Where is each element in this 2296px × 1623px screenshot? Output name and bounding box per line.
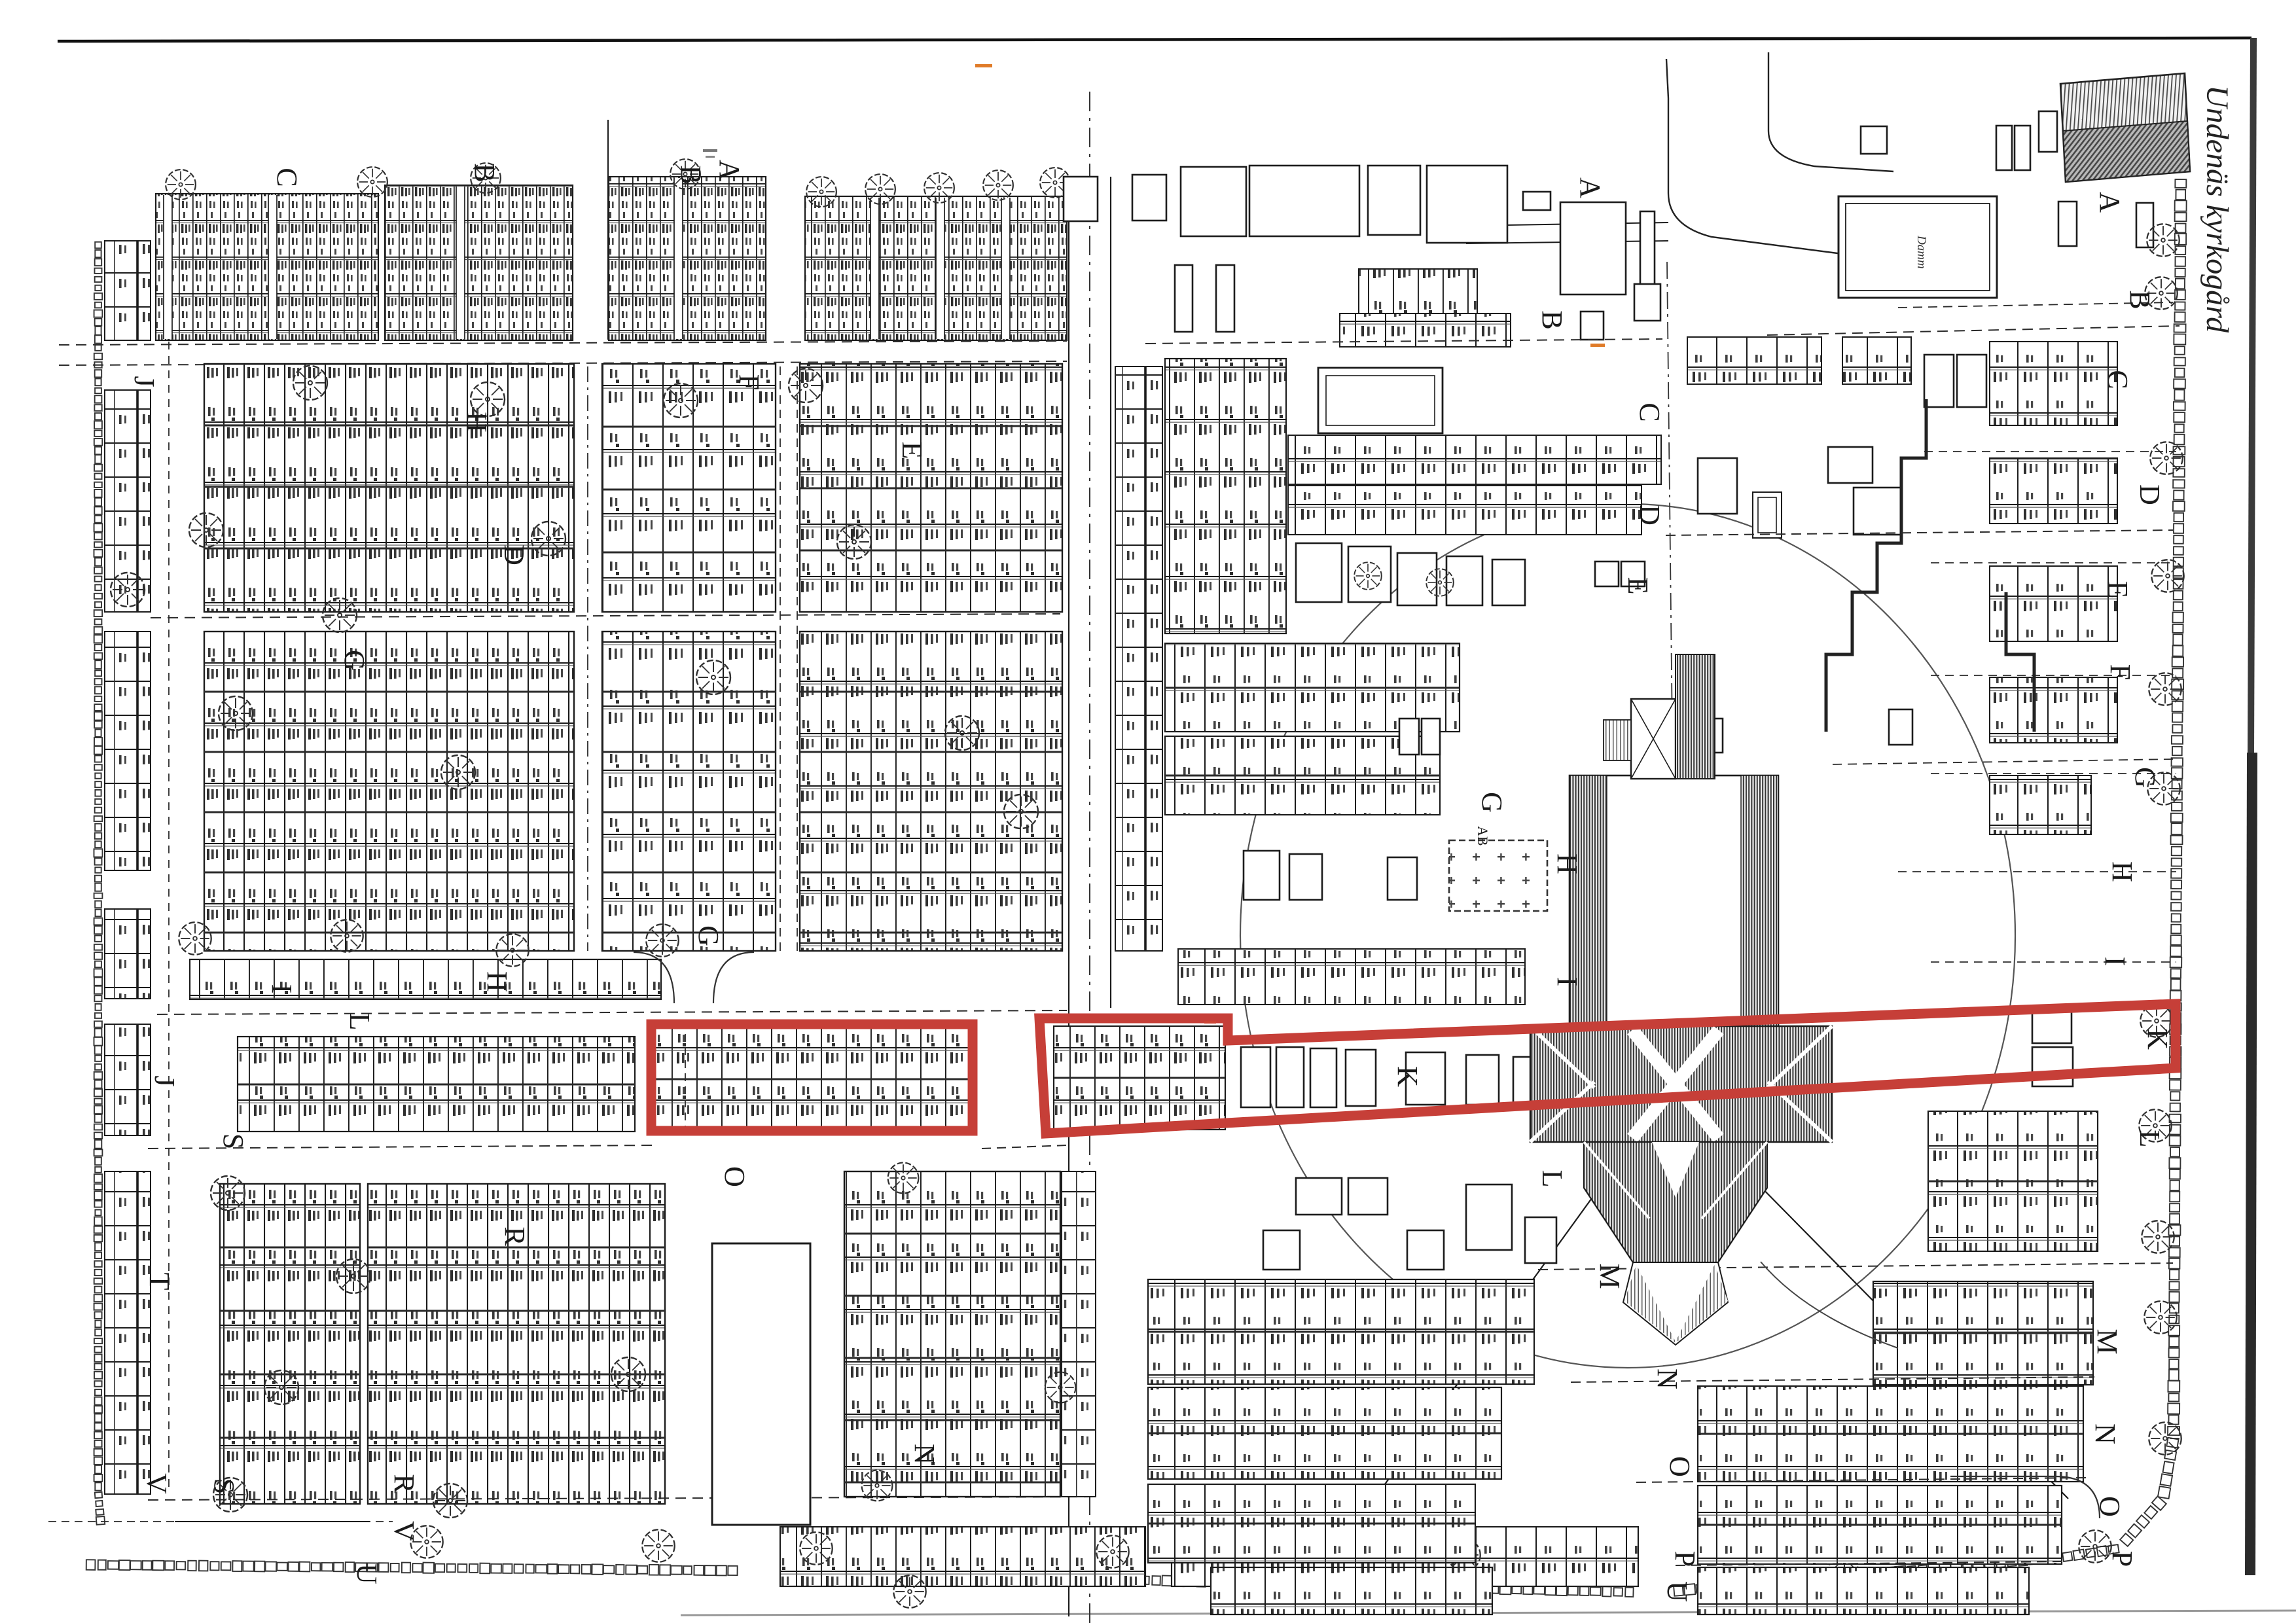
svg-text:I: I — [1551, 977, 1583, 987]
svg-text:O: O — [2094, 1496, 2126, 1517]
svg-text:F: F — [733, 374, 765, 390]
svg-text:G: G — [692, 925, 725, 946]
svg-text:S: S — [217, 1133, 249, 1149]
svg-text:H: H — [1551, 853, 1583, 874]
svg-text:D: D — [498, 544, 530, 565]
svg-text:V: V — [388, 1521, 420, 1542]
svg-text:K: K — [1391, 1066, 1424, 1087]
svg-text:I: I — [2099, 957, 2131, 967]
svg-text:G: G — [1476, 792, 1508, 813]
svg-text:A: A — [713, 160, 745, 181]
svg-text:AB: AB — [1475, 826, 1491, 846]
svg-text:J: J — [128, 376, 160, 387]
svg-text:G: G — [2129, 767, 2161, 788]
svg-text:B: B — [469, 163, 501, 182]
svg-text:H: H — [481, 971, 513, 992]
svg-text:P: P — [2106, 1551, 2138, 1567]
svg-text:L: L — [2134, 1130, 2166, 1148]
svg-text:Damm: Damm — [1914, 235, 1928, 269]
svg-text:D: D — [1634, 505, 1666, 526]
svg-text:E: E — [2102, 581, 2134, 599]
svg-text:L: L — [344, 1013, 376, 1031]
svg-text:G: G — [338, 650, 370, 671]
svg-text:M: M — [1594, 1263, 1626, 1289]
svg-text:N: N — [1651, 1368, 1683, 1389]
svg-text:N: N — [908, 1444, 941, 1465]
svg-text:R: R — [499, 1226, 531, 1246]
svg-text:F: F — [2104, 664, 2136, 680]
svg-text:C: C — [2102, 370, 2134, 389]
svg-text:T: T — [143, 1273, 175, 1291]
svg-text:S: S — [208, 1478, 240, 1494]
svg-text:U: U — [1661, 1581, 1693, 1602]
svg-text:M: M — [2091, 1329, 2123, 1354]
svg-text:E: E — [1622, 577, 1654, 595]
svg-text:I: I — [266, 984, 298, 994]
svg-text:O: O — [1664, 1456, 1696, 1477]
svg-text:A: A — [2094, 192, 2126, 213]
svg-text:O: O — [719, 1166, 751, 1187]
svg-text:J: J — [149, 1075, 181, 1086]
svg-text:V: V — [141, 1473, 173, 1494]
svg-text:B: B — [675, 165, 707, 184]
svg-text:C: C — [1634, 402, 1666, 421]
svg-text:L: L — [1536, 1170, 1568, 1188]
svg-text:U: U — [351, 1563, 383, 1584]
svg-text:B: B — [2124, 290, 2156, 309]
svg-text:B: B — [1536, 310, 1568, 329]
svg-text:D: D — [2134, 484, 2166, 505]
svg-text:N: N — [2089, 1423, 2121, 1444]
svg-text:H: H — [2106, 861, 2138, 882]
svg-text:Undenäs kyrkogård: Undenäs kyrkogård — [2200, 85, 2234, 333]
svg-text:H: H — [461, 412, 493, 433]
svg-text:K: K — [2142, 1029, 2174, 1050]
svg-text:E: E — [896, 442, 928, 459]
svg-text:R: R — [388, 1474, 420, 1493]
svg-text:P: P — [1669, 1551, 1701, 1567]
svg-text:C: C — [271, 168, 303, 187]
svg-text:A: A — [1574, 177, 1606, 198]
